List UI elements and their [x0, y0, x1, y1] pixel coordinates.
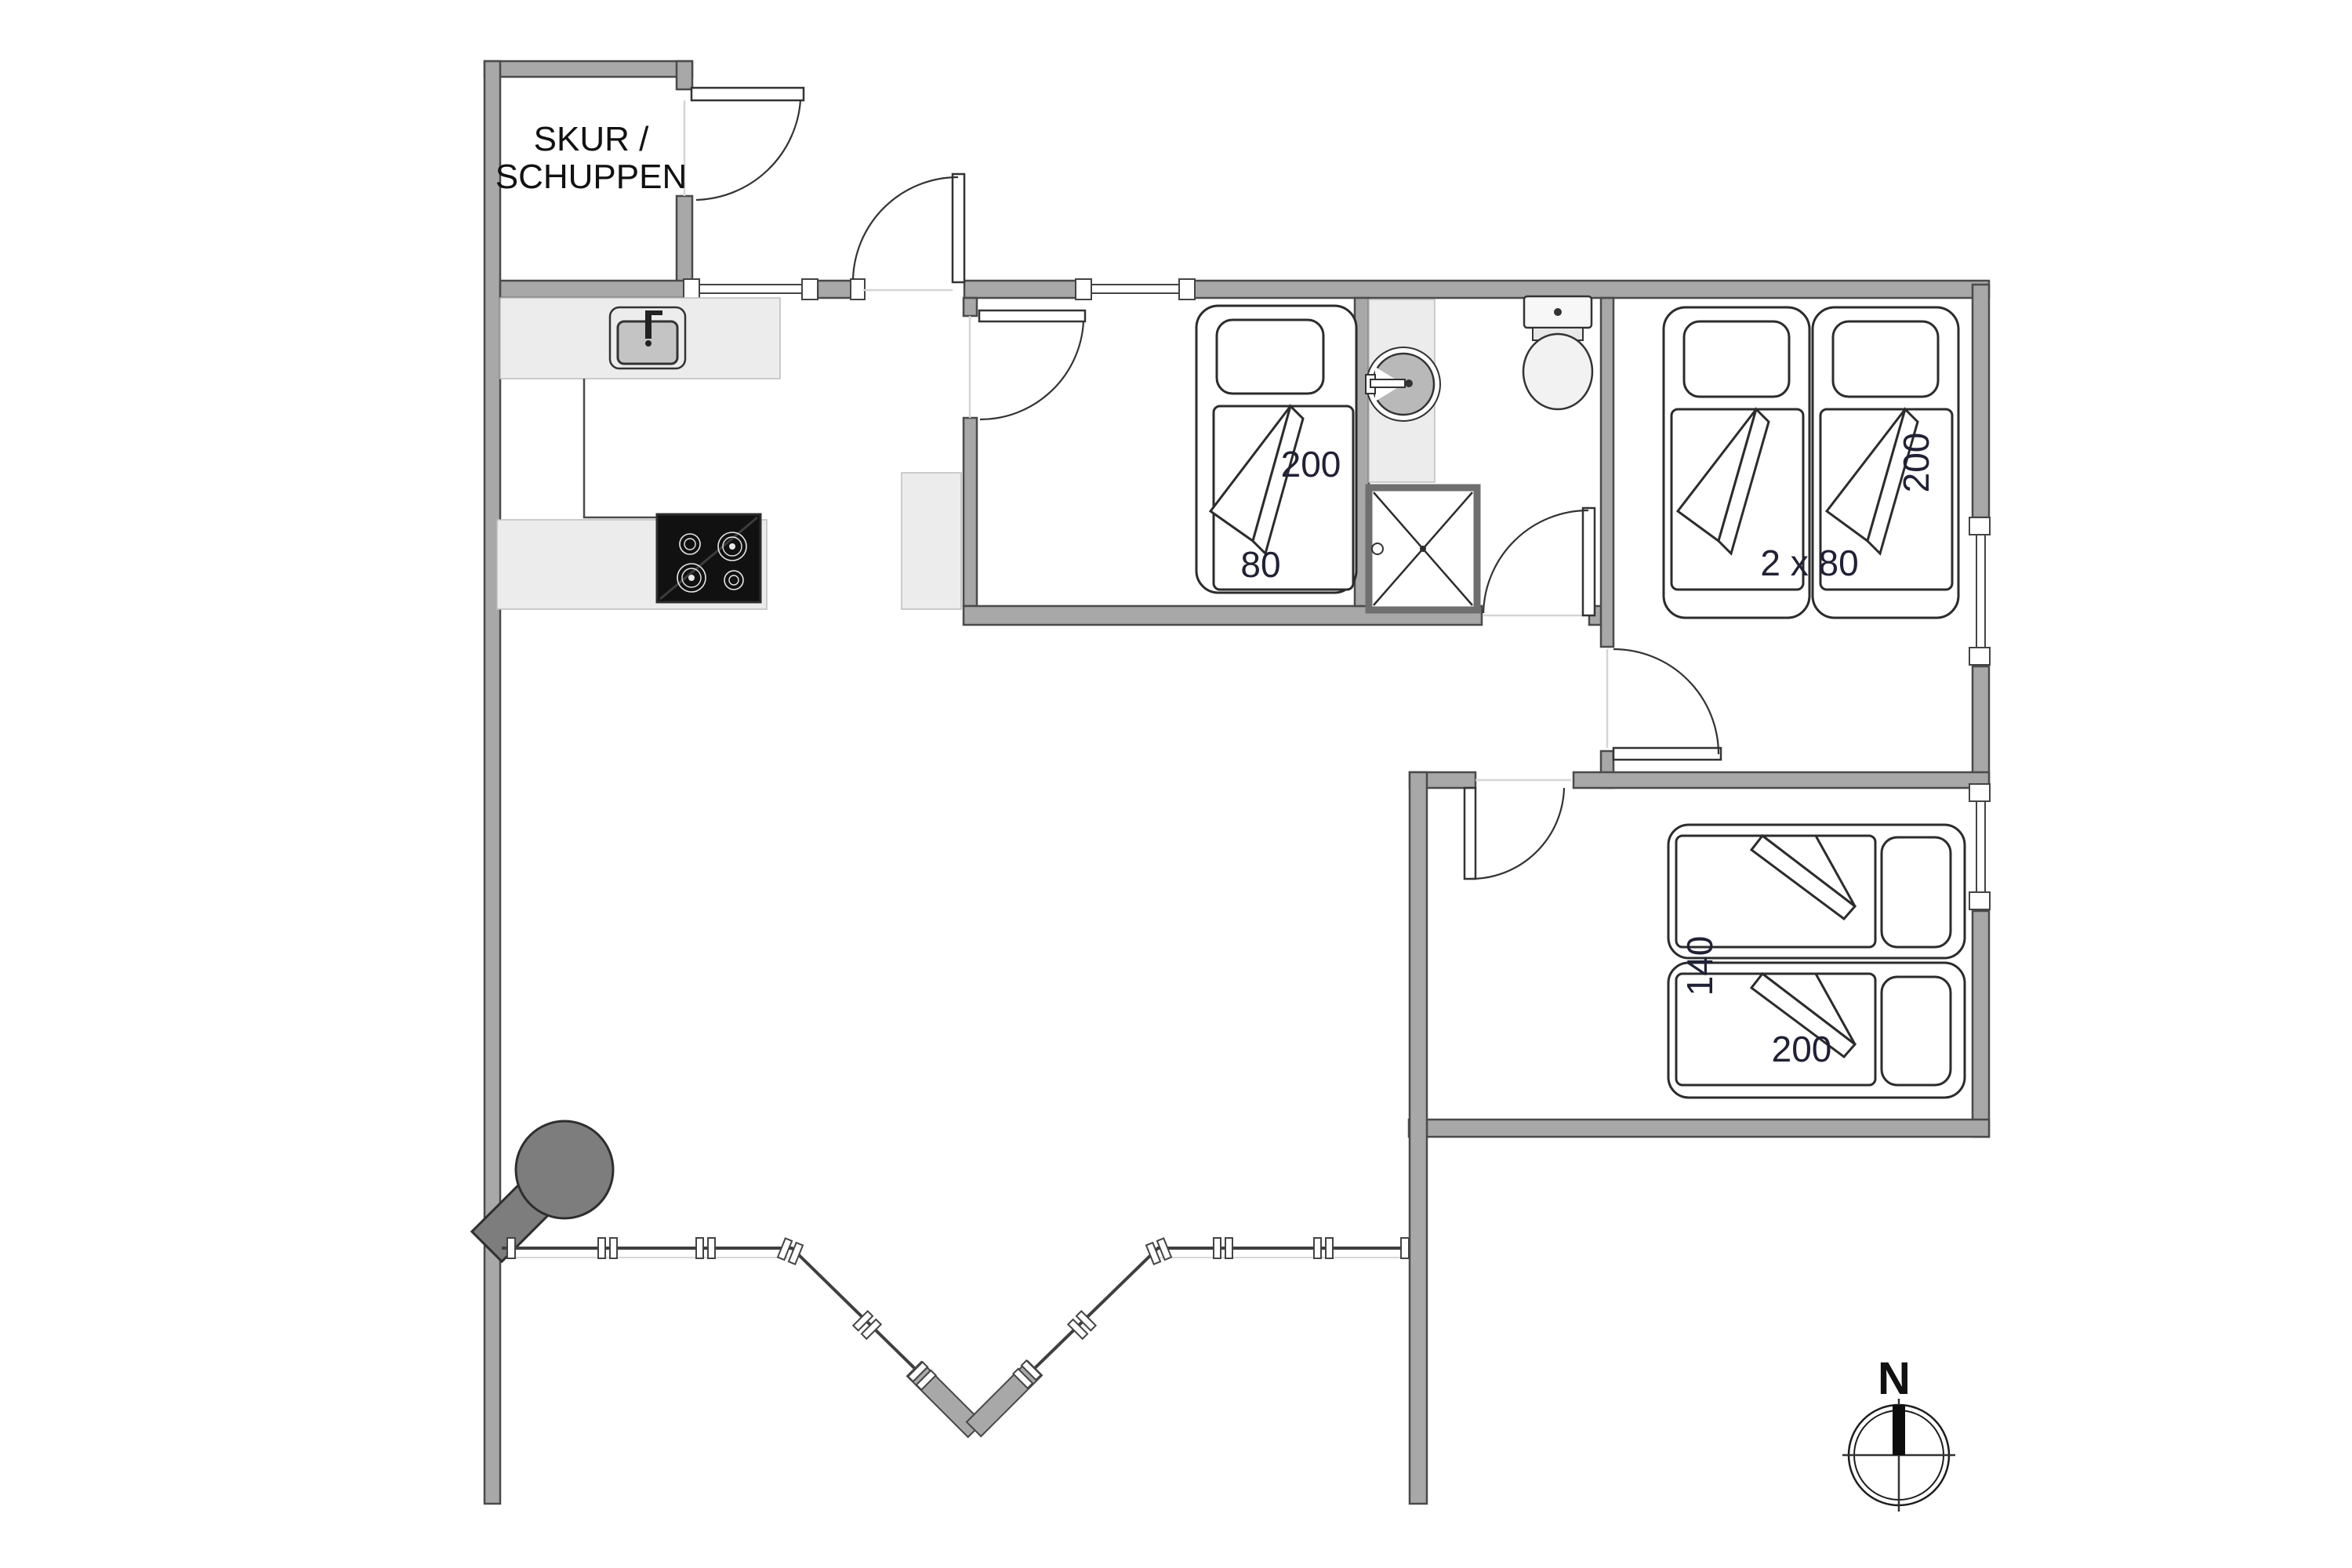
bed-twin-length-label: 200: [1896, 433, 1936, 493]
bed-single-length-label: 200: [1281, 444, 1341, 485]
wall-bath-east: [1601, 298, 1613, 647]
bedroom1-door: [970, 310, 1085, 419]
shed-door: [684, 88, 804, 200]
bed-twin-size-label: 2 x 80: [1760, 543, 1858, 583]
bathroom-door: [1483, 508, 1595, 615]
bed-double: 140 200: [1668, 825, 1965, 1098]
bed-twin: 2 x 80 200: [1664, 307, 1958, 618]
wall-right-1: [1973, 285, 1989, 517]
wall-right-3: [1973, 911, 1989, 1137]
wall-se-top-east: [1573, 772, 1989, 788]
window-post: [1401, 1238, 1409, 1258]
washbasin-icon: [1366, 347, 1440, 421]
entrance-door: [853, 174, 964, 290]
shed-label-line2: SCHUPPEN: [495, 158, 688, 196]
window-post: [1146, 1238, 1171, 1264]
kitchen: [497, 298, 961, 609]
sink-icon: [610, 307, 685, 368]
toilet-icon: [1523, 296, 1592, 409]
bed-double-length-label: 200: [1772, 1029, 1832, 1069]
pillow: [1882, 837, 1951, 947]
bed-single-width-label: 80: [1240, 544, 1280, 585]
shed: SKUR / SCHUPPEN: [495, 120, 688, 196]
wall-top-4: [1181, 281, 1989, 298]
pillow: [1882, 977, 1951, 1085]
wall-bed1-west: [964, 418, 977, 606]
beds: 200 80 2 x 80 200: [1196, 306, 1965, 1098]
wall-bed1-west-stub: [964, 298, 977, 316]
stove-icon: [657, 514, 760, 602]
bed-double-width-label: 140: [1679, 936, 1720, 996]
pillow: [1833, 321, 1938, 397]
window-post: [507, 1238, 515, 1258]
wall-top-1: [500, 281, 698, 298]
wall-shed-east-upper: [677, 61, 692, 89]
window-right-twin-room: [1969, 517, 1990, 665]
wall-right-2: [1973, 666, 1989, 784]
walls: [485, 61, 1989, 1504]
bed-single: 200 80: [1196, 306, 1356, 593]
wall-top-3: [964, 281, 1077, 298]
window-bedroom1: [1076, 279, 1195, 299]
floor-plan: 200 80 2 x 80 200: [0, 0, 2352, 1568]
bathroom: [1366, 296, 1592, 610]
window-right-se-room: [1969, 784, 1990, 909]
compass-north-label: N: [1878, 1353, 1911, 1404]
window-post: [853, 1311, 880, 1338]
window-post: [778, 1238, 803, 1264]
hall-cabinet: [902, 473, 961, 609]
pillow: [1684, 321, 1789, 397]
wall-bottom-se: [1409, 1120, 1989, 1137]
kitchen-counter-edge: [584, 379, 657, 517]
wall-shed-east-lower: [677, 196, 692, 290]
shed-label-line1: SKUR /: [534, 120, 649, 158]
shower-icon: [1369, 488, 1477, 610]
compass-needle: [1893, 1405, 1905, 1455]
compass-rose-icon: N: [1842, 1353, 1955, 1512]
wall-se-west: [1410, 772, 1427, 1504]
terrace-window-wall: [502, 1238, 1410, 1437]
wall-left: [485, 61, 500, 1504]
wall-shed-top: [485, 61, 692, 77]
pillow: [1217, 320, 1323, 394]
window-post: [1068, 1311, 1095, 1338]
twin-bedroom-door: [1607, 649, 1721, 760]
se-bedroom-door: [1465, 780, 1571, 879]
